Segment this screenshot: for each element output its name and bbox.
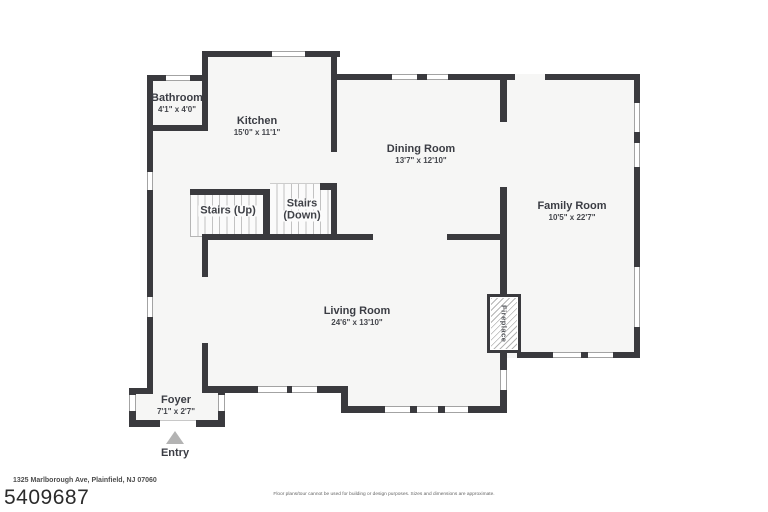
room-dims: 13'7" x 12'10" [387,155,455,166]
main-top-wall-right [545,74,640,80]
family-bottom-window-right [588,352,613,358]
dining-window-right [427,74,448,80]
right-wall-window-2 [634,143,640,167]
living-jog-wall [341,386,348,413]
room-dims: 10'5" x 22'7" [537,212,606,223]
below-fireplace-window [500,370,507,390]
left-exterior-wall [147,75,153,393]
room-name: Family Room [537,200,606,212]
room-name: Kitchen [234,115,281,127]
living-window-2 [417,406,438,413]
room-name: Living Room [324,305,391,317]
room-name: Bathroom [151,92,203,104]
left-wall-window-1 [147,172,153,190]
family-divider-upper-wall [500,80,507,122]
room-label-dining: Dining Room 13'7" x 12'10" [387,143,455,166]
left-stub-upper-wall [202,234,208,277]
room-dims: 4'1" x 4'0" [151,104,203,115]
below-stairs-wall [202,234,373,240]
footer-mls-number: 5409687 [4,486,89,510]
fireplace-label: Fireplace [500,305,509,342]
stairs-down-label-line2: (Down) [281,211,322,222]
kitchen-left-wall [202,51,208,131]
lower-left-window-2 [292,386,317,393]
stairs-divider-wall [263,189,270,240]
dining-window-left [392,74,417,80]
living-corner-wall [500,390,507,413]
entry-label: Entry [161,447,189,459]
family-divider-mid-wall [500,187,507,295]
dining-bottom-wall [447,234,507,240]
entry-label-wrap: Entry [161,447,189,459]
room-dims: 15'0" x 11'1" [234,127,281,138]
bathroom-window [166,75,190,81]
living-window-3 [445,406,468,413]
floor-plan-page: Fireplace Stairs (Up) Stairs (Down) Bath… [0,0,768,512]
fireplace: Fireplace [487,294,521,353]
living-window-1 [385,406,410,413]
lower-left-window-1 [258,386,287,393]
foyer-right-window [218,395,225,411]
entry-threshold [160,420,196,421]
fireplace-inner: Fireplace [490,297,518,350]
family-bottom-window-left [553,352,581,358]
kitchen-top-wall [202,51,340,57]
footer-address: 1325 Marlborough Ave, Plainfield, NJ 070… [13,477,157,484]
right-wall-window-3 [634,267,640,327]
fireplace-hatch: Fireplace [491,298,517,349]
kitchen-right-wall [331,51,337,152]
room-name: Dining Room [387,143,455,155]
foyer-left-window [129,395,136,411]
left-stub-lower-wall [202,343,208,393]
room-name: Foyer [157,394,195,406]
bathroom-bottom-wall [147,125,208,131]
main-top-wall-left [334,74,515,80]
room-label-kitchen: Kitchen 15'0" x 11'1" [234,115,281,138]
room-dims: 7'1" x 2'7" [157,406,195,417]
left-wall-window-2 [147,297,153,317]
kitchen-window [272,51,305,57]
room-label-family: Family Room 10'5" x 22'7" [537,200,606,223]
room-label-bathroom: Bathroom 4'1" x 4'0" [151,92,203,115]
room-label-living: Living Room 24'6" x 13'10" [324,305,391,328]
stairs-down-label-line1: Stairs [285,199,320,210]
stairs-top-wall [190,189,270,195]
right-wall-window-1 [634,103,640,132]
stairs-right-wall [331,183,337,240]
entry-arrow-icon [166,431,184,444]
footer-disclaimer: Floor plans/tour cannot be used for buil… [273,492,494,497]
below-fireplace-wall [500,352,507,370]
stairs-up-label: Stairs (Up) [198,206,258,217]
room-label-foyer: Foyer 7'1" x 2'7" [157,394,195,417]
room-dims: 24'6" x 13'10" [324,317,391,328]
